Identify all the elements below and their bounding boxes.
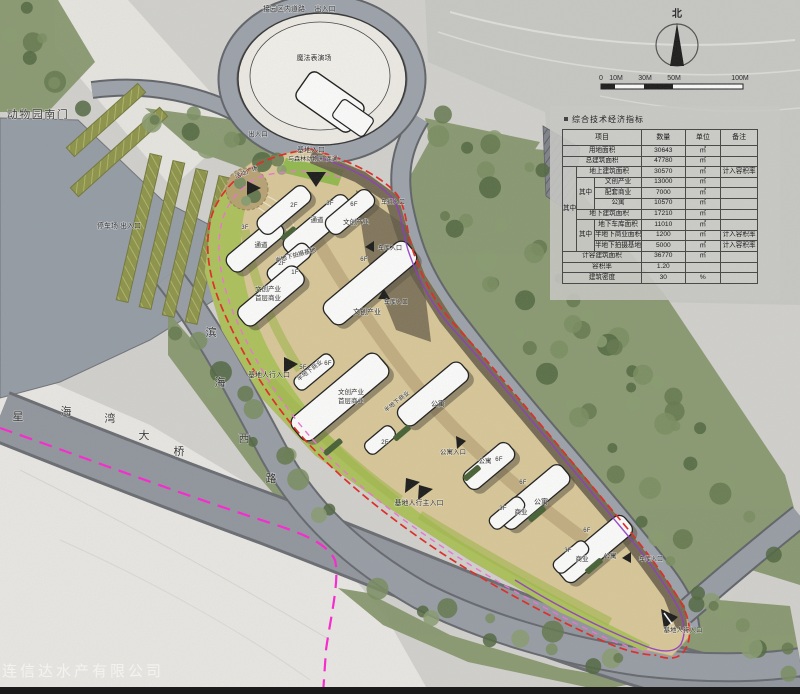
col-item: 项目 — [563, 130, 642, 146]
site-plan-canvas: 接园区内道路 出入口 魔法表演场 动物园南门 出入口 基地入口 与森林动物园 连… — [0, 0, 800, 694]
table-title: 综合技术经济指标 — [564, 114, 766, 125]
table-row: 地下建筑面积17210㎡ — [563, 209, 758, 220]
economic-indicators-table: 项目 数量 单位 备注 用地面积30643㎡ 总建筑面积47780㎡ 其中地上建… — [562, 129, 758, 284]
table-row: 总建筑面积47780㎡ — [563, 156, 758, 167]
table-row: 计容建筑面积36770㎡ — [563, 251, 758, 262]
table-header-row: 项目 数量 单位 备注 — [563, 130, 758, 146]
master-plan-drawing: 接园区内道路 出入口 魔法表演场 动物园南门 出入口 基地入口 与森林动物园 连… — [0, 0, 800, 694]
bottom-frame-bar — [0, 687, 800, 694]
title-bullet-icon — [564, 117, 568, 121]
watermark-text: 大连信达水产有限公司 — [0, 663, 164, 680]
col-unit: 单位 — [685, 130, 721, 146]
col-qty: 数量 — [642, 130, 685, 146]
table-row: 其中地下车库面积11010㎡ — [563, 220, 758, 231]
economic-indicator-panel: 综合技术经济指标 项目 数量 单位 备注 用地面积30643㎡ 总建筑面积477… — [562, 114, 766, 284]
table-row: 建筑密度30% — [563, 273, 758, 284]
table-row: 其中文创产业13000㎡ — [563, 177, 758, 188]
col-note: 备注 — [721, 130, 758, 146]
table-row: 容积率1.20 — [563, 262, 758, 273]
table-row: 其中地上建筑面积30570㎡计入容积率 — [563, 167, 758, 178]
photo-grain-overlay — [0, 0, 800, 694]
table-row: 用地面积30643㎡ — [563, 146, 758, 157]
